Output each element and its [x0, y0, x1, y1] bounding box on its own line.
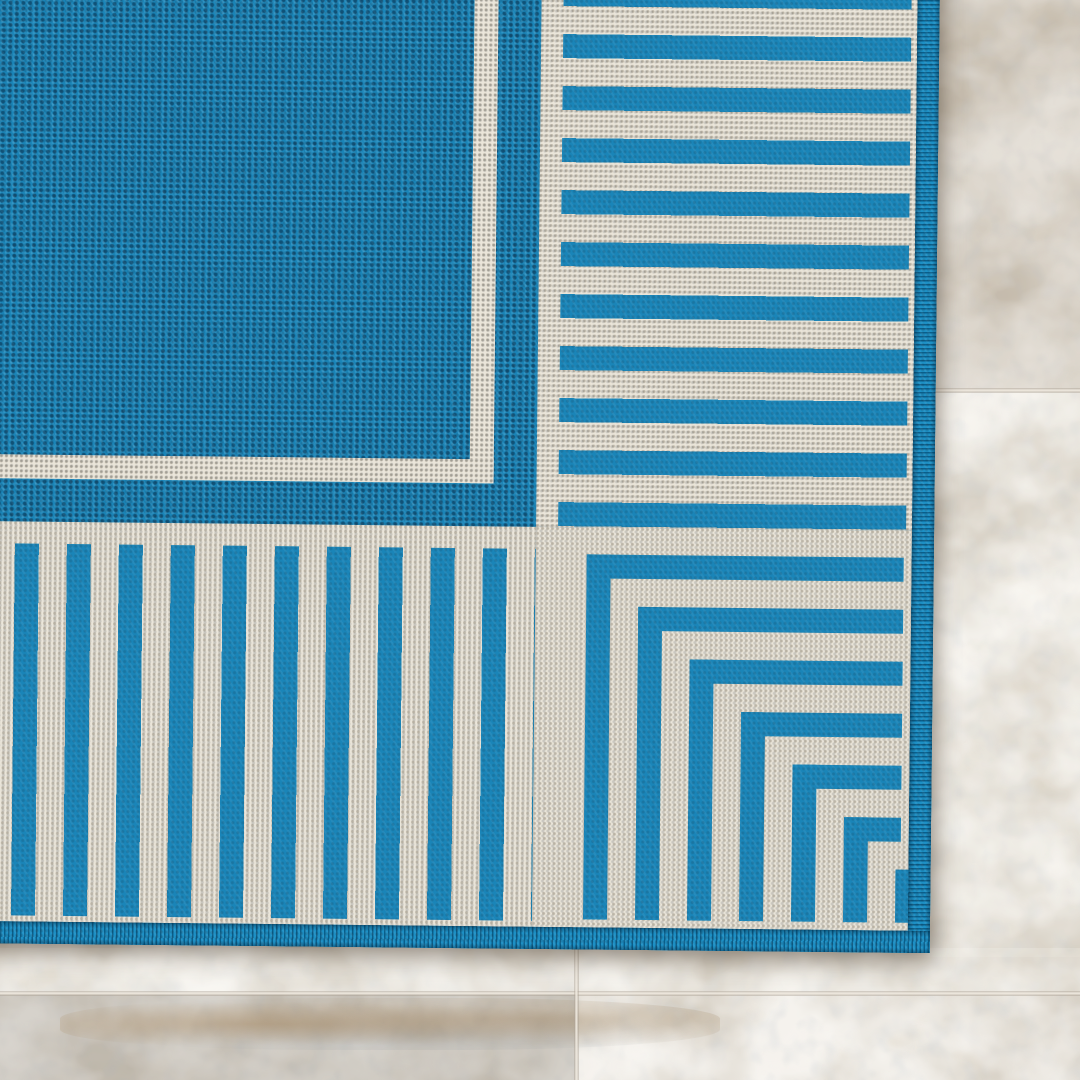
corner-bracket-arm-vertical	[635, 607, 662, 920]
tile-joint-bottom-vertical	[574, 948, 579, 1080]
rug-border-right-stripes	[558, 0, 912, 531]
corner-bracket-arm-horizontal	[638, 607, 903, 634]
rug	[0, 0, 940, 953]
corner-bracket-arm-vertical	[687, 659, 714, 920]
rug-border-right	[536, 0, 918, 531]
corner-bracket-arm-horizontal	[587, 554, 904, 581]
corner-bracket-arm-vertical	[791, 765, 817, 922]
rug-corner-motif	[532, 527, 912, 931]
corner-bracket-arm-horizontal	[689, 659, 902, 685]
tile-joint-bottom-horizontal	[0, 991, 1080, 996]
corner-bracket-arm-vertical	[843, 817, 868, 922]
scene	[0, 0, 1080, 1080]
corner-bracket-arm-vertical	[583, 554, 611, 919]
rug-border-bottom	[0, 520, 536, 926]
corner-bracket-arm-vertical	[739, 712, 765, 921]
rug-inner-frame-line-horizontal	[0, 453, 494, 483]
rug-border-bottom-stripes	[0, 542, 536, 920]
